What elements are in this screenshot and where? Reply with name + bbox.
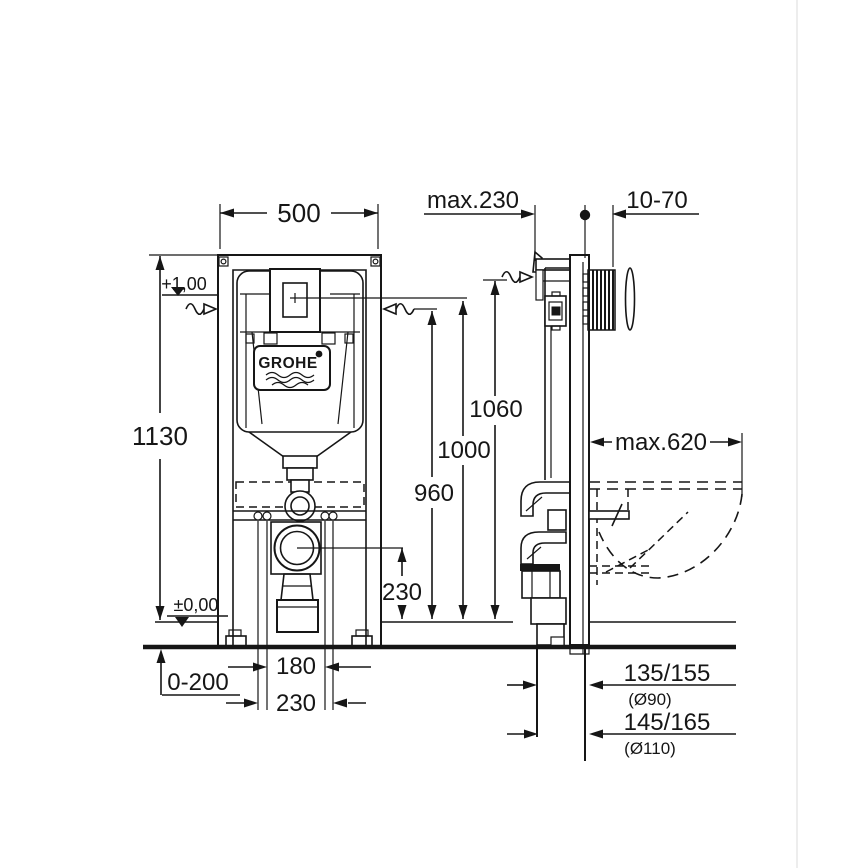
dim-drain-90-label: 135/155 xyxy=(624,660,711,687)
dim-bolt-span-outer: 230 xyxy=(226,690,366,717)
side-pipework xyxy=(520,482,570,646)
dim-bolt-span-inner-label: 180 xyxy=(276,653,316,680)
dim-wall-clearance: max.230 xyxy=(424,187,535,261)
level-top-label: +1,00 xyxy=(161,274,207,294)
dim-floor-adjust: 0-200 xyxy=(157,649,241,696)
dim-frame-width-label: 500 xyxy=(277,198,320,228)
dim-plate-depth-label: 10-70 xyxy=(626,187,687,214)
dim-960: 960 xyxy=(414,311,454,619)
dim-drain-110-label: 145/165 xyxy=(624,709,711,736)
actuation-shaft xyxy=(583,270,615,330)
dim-outlet-height-label: 230 xyxy=(382,579,422,606)
flush-plate-profile xyxy=(626,268,635,330)
dim-floor-adjust-label: 0-200 xyxy=(167,669,228,696)
level-mark-top: +1,00 xyxy=(161,274,217,296)
reference-dot-icon xyxy=(580,210,590,220)
dim-plate-depth: 10-70 xyxy=(612,187,699,267)
outlet-box xyxy=(277,600,318,632)
grohe-logo-text: GROHE xyxy=(258,355,317,372)
corner-screw-left xyxy=(219,257,228,266)
dim-drain-90-dia-label: (Ø90) xyxy=(628,690,671,709)
frame-front-plate xyxy=(570,255,589,654)
dim-bowl-depth: max.620 xyxy=(590,429,742,497)
threaded-rod xyxy=(589,504,629,526)
drawing-svg: GROHE xyxy=(0,0,868,868)
wavy-arrow-icon xyxy=(502,272,532,283)
dim-1000-label: 1000 xyxy=(437,437,490,464)
dim-960-label: 960 xyxy=(414,480,454,507)
installation-drawing: GROHE xyxy=(0,0,868,868)
dim-frame-height-label: 1130 xyxy=(132,421,188,451)
dim-drain-90: 135/155 (Ø90) xyxy=(507,660,736,709)
dim-1000: 1000 xyxy=(437,301,490,619)
dim-bolt-span-outer-label: 230 xyxy=(276,690,316,717)
reference-point xyxy=(580,205,590,258)
dim-drain-110-dia-label: (Ø110) xyxy=(624,739,676,758)
dim-outlet-height: 230 xyxy=(382,548,422,619)
dim-bowl-depth-label: max.620 xyxy=(615,429,707,456)
dim-wall-clearance-label: max.230 xyxy=(427,187,519,214)
wavy-arrow-icon xyxy=(384,304,437,315)
wavy-arrow-icon xyxy=(186,304,216,315)
wc-bowl-dashed xyxy=(589,482,742,585)
flush-pipe xyxy=(236,432,364,521)
dim-bolt-span-inner: 180 xyxy=(228,653,371,680)
grohe-logo-plate: GROHE xyxy=(254,346,330,390)
dim-1060-label: 1060 xyxy=(469,396,522,423)
dim-drain-110: 145/165 (Ø110) xyxy=(507,709,736,758)
dim-frame-width: 500 xyxy=(220,198,378,249)
corner-screw-right xyxy=(371,257,380,266)
logo-dot xyxy=(316,351,323,358)
bracket-fixing-block xyxy=(545,292,566,330)
outlet-connector xyxy=(271,522,403,632)
level-floor-label: ±0,00 xyxy=(174,595,219,615)
